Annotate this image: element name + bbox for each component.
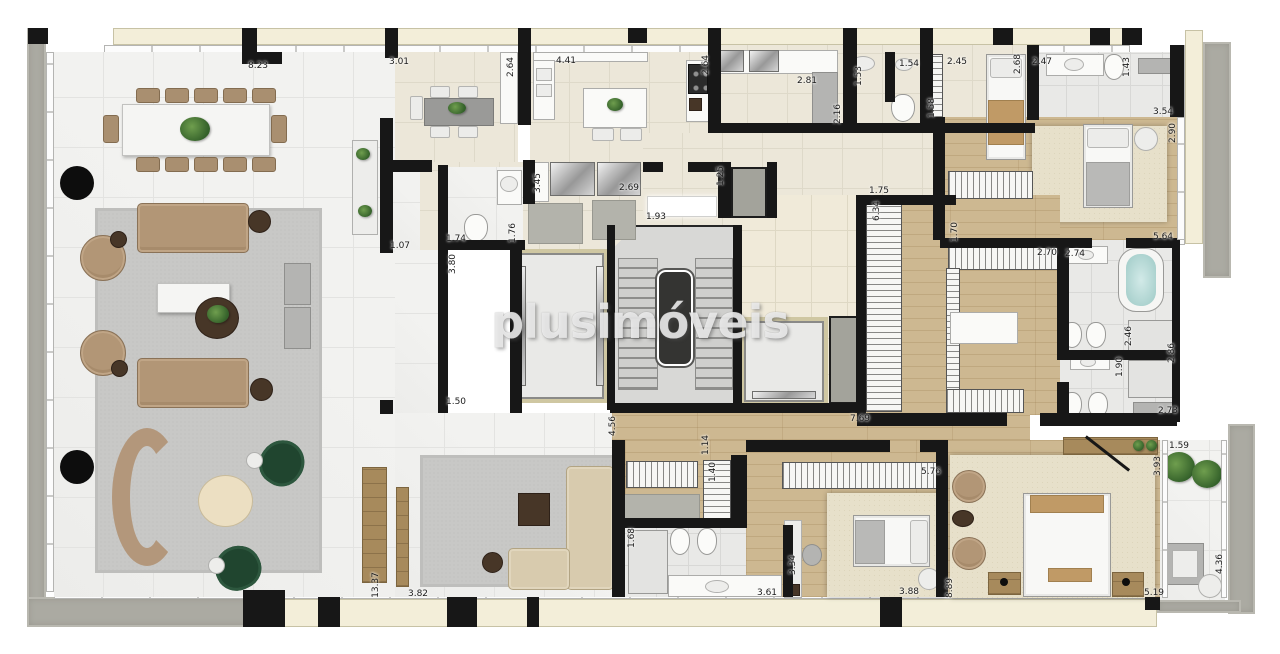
console-plant xyxy=(1133,440,1144,451)
dimension-label: 1.58 xyxy=(927,98,937,118)
wall xyxy=(733,225,742,410)
dining-chair xyxy=(252,157,276,172)
bathtub-water xyxy=(1126,254,1156,306)
breakfast-chair xyxy=(458,126,478,138)
stair-flight xyxy=(618,258,658,390)
wall xyxy=(1090,28,1110,45)
chaise xyxy=(284,263,311,305)
master-armchair xyxy=(952,537,986,570)
console-plant xyxy=(358,205,372,217)
wall xyxy=(380,118,393,253)
balcony-plant xyxy=(1192,460,1222,488)
floor-plan: 8.233.012.644.412.642.812.161.531.542.45… xyxy=(0,0,1280,654)
floor-mat xyxy=(624,494,700,520)
duct-shaft xyxy=(731,167,767,218)
dimension-label: 1.75 xyxy=(869,186,889,196)
breakfast-chair xyxy=(430,86,450,98)
bed-pillow xyxy=(1087,128,1129,148)
dimension-label: 1.43 xyxy=(1122,57,1132,77)
island-plant xyxy=(607,98,623,111)
bed-pillow xyxy=(910,520,928,564)
dimension-label: 2.46 xyxy=(1124,326,1134,346)
dimension-label: 1.76 xyxy=(508,223,518,243)
wall xyxy=(746,440,890,452)
family-sofa xyxy=(566,466,614,590)
bidet xyxy=(697,528,717,555)
lounge-cushion xyxy=(1172,550,1198,578)
terrace-edge-left xyxy=(27,28,46,625)
desk-chair xyxy=(802,544,822,566)
terrace-edge-bottom-left xyxy=(27,597,250,627)
side-table xyxy=(250,378,273,401)
window-band-left xyxy=(46,52,54,592)
dining-chair xyxy=(194,157,218,172)
wall xyxy=(518,28,531,125)
side-table xyxy=(110,231,127,248)
table-lamp xyxy=(1000,578,1008,586)
side-table xyxy=(482,552,503,573)
dimension-label: 2.68 xyxy=(1013,54,1023,74)
family-coffee-table xyxy=(518,493,550,526)
dining-chair xyxy=(223,88,247,103)
dimension-label: 4.36 xyxy=(1215,554,1225,574)
dining-chair xyxy=(252,88,276,103)
breakfast-chair xyxy=(458,86,478,98)
bed-blanket xyxy=(855,520,885,564)
table-plant xyxy=(448,102,466,114)
kitchen-sink xyxy=(536,84,552,97)
dimension-label: 3.88 xyxy=(899,587,919,597)
dimension-label: 3.93 xyxy=(1153,456,1163,476)
wall xyxy=(767,162,777,218)
master-bed-cushions xyxy=(1048,568,1092,582)
balcony-band-bottom xyxy=(250,599,1157,627)
dimension-label: 1.40 xyxy=(708,462,718,482)
dimension-label: 2.64 xyxy=(701,55,711,75)
dimension-label: 2.90 xyxy=(1168,123,1178,143)
terrace-edge-right-top xyxy=(1203,42,1231,278)
ceiling-fan xyxy=(1134,127,1158,151)
powder-toilet xyxy=(464,214,488,242)
dimension-label: 3.61 xyxy=(757,588,777,598)
dimension-label: 8.89 xyxy=(945,578,955,598)
dining-chair xyxy=(223,157,247,172)
gallery-floor xyxy=(395,250,438,413)
elevator-door xyxy=(752,391,816,399)
side-table xyxy=(248,210,271,233)
master-headboard-cushion xyxy=(1030,495,1104,513)
dimension-label: 1.93 xyxy=(646,212,666,222)
bedroom-wardrobe xyxy=(948,171,1033,199)
dimension-label: 5.64 xyxy=(1153,232,1173,242)
wall xyxy=(510,240,522,413)
terrace-edge-right-bottom xyxy=(1228,424,1255,614)
dining-chair xyxy=(194,88,218,103)
wall xyxy=(447,597,477,627)
dimension-label: 1.50 xyxy=(446,397,466,407)
wall xyxy=(610,403,860,413)
wall xyxy=(920,440,936,452)
wall xyxy=(708,123,1035,133)
dimension-label: 2.45 xyxy=(947,57,967,67)
service-shaft xyxy=(550,162,595,196)
dimension-label: 2.74 xyxy=(1065,249,1085,259)
wall xyxy=(243,590,285,627)
dimension-label: 3.01 xyxy=(389,57,409,67)
dimension-label: 8.23 xyxy=(248,61,268,71)
dimension-label: 2.47 xyxy=(1032,57,1052,67)
dimension-label: 7.69 xyxy=(850,414,870,424)
coffee-table-plant xyxy=(207,305,229,323)
dimension-label: 3.82 xyxy=(408,589,428,599)
dimension-label: 1.90 xyxy=(1115,357,1125,377)
bookshelf xyxy=(362,467,387,583)
wall xyxy=(1040,413,1177,426)
dimension-label: 1.14 xyxy=(701,435,711,455)
dining-chair xyxy=(103,115,119,143)
dimension-label: 5.76 xyxy=(921,467,941,477)
console-plant xyxy=(356,148,370,160)
dimension-label: 2.16 xyxy=(833,104,843,124)
dimension-label: 1.53 xyxy=(854,66,864,86)
side-table xyxy=(111,360,128,377)
corridor-wardrobe xyxy=(866,197,902,412)
breakfast-chair xyxy=(430,126,450,138)
island-stool xyxy=(592,128,614,141)
dimension-label: 3.80 xyxy=(448,254,458,274)
dimension-label: 5.19 xyxy=(1144,588,1164,598)
wall xyxy=(708,28,721,125)
master-armchair xyxy=(952,470,986,503)
wall xyxy=(28,28,48,44)
dimension-label: 1.07 xyxy=(390,241,410,251)
breakfast-chair xyxy=(410,96,423,120)
closet-island xyxy=(950,312,1018,344)
dining-chair xyxy=(165,157,189,172)
dimension-label: 2.73 xyxy=(1158,406,1178,416)
dining-chair xyxy=(165,88,189,103)
chaise xyxy=(284,307,311,349)
wall xyxy=(438,165,448,413)
bedroom-wardrobe xyxy=(782,462,940,489)
bidet xyxy=(1086,322,1106,348)
dimension-label: 2.70 xyxy=(1037,248,1057,258)
wall xyxy=(993,28,1013,45)
dimension-label: 1.25 xyxy=(716,166,726,186)
stair-void xyxy=(657,270,693,366)
powder-sink xyxy=(500,176,518,192)
dimension-label: 1.70 xyxy=(950,222,960,242)
wall xyxy=(731,455,747,527)
toilet xyxy=(670,528,690,555)
wall xyxy=(857,413,1007,426)
dimension-label: 2.81 xyxy=(797,76,817,86)
dimension-label: 1.54 xyxy=(899,59,919,69)
vestibule-wardrobe xyxy=(626,461,698,488)
dimension-label: 4.56 xyxy=(608,416,618,436)
wall xyxy=(628,28,647,43)
sideboard xyxy=(396,487,409,587)
wall xyxy=(1145,597,1160,610)
dimension-label: 13.37 xyxy=(371,572,381,598)
serving-tray xyxy=(1198,574,1222,598)
wall xyxy=(936,440,948,597)
wall xyxy=(856,195,866,413)
duct-shaft xyxy=(829,316,859,404)
console-plant xyxy=(1146,440,1157,451)
terrace-edge-bottom-right xyxy=(1157,600,1241,613)
wall xyxy=(625,518,747,528)
balcony-band-right xyxy=(1185,30,1203,244)
kitchen-sink xyxy=(536,68,552,81)
wall xyxy=(380,400,393,414)
dimension-label: 3.54 xyxy=(1153,107,1173,117)
dining-chair xyxy=(136,157,160,172)
dimension-label: 1.68 xyxy=(627,528,637,548)
dimension-label: 3.34 xyxy=(788,555,798,575)
bed-blanket xyxy=(1086,162,1130,206)
sofa xyxy=(137,358,249,408)
family-sofa xyxy=(508,548,570,590)
wall xyxy=(885,52,895,102)
side-table xyxy=(952,510,974,527)
bath-top-toilet xyxy=(1104,54,1124,80)
wall xyxy=(318,597,340,627)
dimension-label: 2.64 xyxy=(506,57,516,77)
wall xyxy=(527,597,539,627)
dining-chair xyxy=(271,115,287,143)
island-stool xyxy=(620,128,642,141)
dryer xyxy=(749,50,779,72)
wall xyxy=(385,28,398,58)
dining-chair xyxy=(136,88,160,103)
wall xyxy=(643,162,663,172)
window xyxy=(1221,440,1227,598)
dimension-label: 2.69 xyxy=(619,183,639,193)
closet-shelf xyxy=(946,389,1024,413)
elevator-door xyxy=(596,266,604,386)
bath-top-sink xyxy=(1064,58,1084,71)
dining-centerpiece-plant xyxy=(180,117,210,141)
dimension-label: 4.41 xyxy=(556,56,576,66)
window xyxy=(1177,117,1185,240)
wall xyxy=(940,238,1092,248)
wall xyxy=(933,117,945,240)
table-lamp xyxy=(1122,578,1130,586)
dimension-label: 2.86 xyxy=(1167,343,1177,363)
planter xyxy=(60,166,94,200)
wall xyxy=(607,225,615,410)
planter xyxy=(60,450,94,484)
balcony-band-top xyxy=(113,28,1127,45)
dimension-label: 1.59 xyxy=(1169,441,1189,451)
dimension-label: 3.45 xyxy=(533,173,543,193)
cutting-board xyxy=(689,98,702,111)
wall xyxy=(1172,240,1180,422)
wall xyxy=(1122,28,1142,45)
stair-flight xyxy=(695,258,733,390)
wall xyxy=(880,597,902,627)
curved-sofa xyxy=(112,428,182,566)
elevator-social xyxy=(514,249,608,403)
ottoman xyxy=(198,475,253,527)
shower xyxy=(1128,360,1177,398)
sofa xyxy=(137,203,249,253)
side-table xyxy=(208,557,225,574)
dimension-label: 1.74 xyxy=(446,234,466,244)
dimension-label: 6.34 xyxy=(872,201,882,221)
side-table xyxy=(246,452,263,469)
bath-sink xyxy=(705,580,729,593)
floor-mat xyxy=(528,203,583,244)
wall xyxy=(612,440,625,597)
